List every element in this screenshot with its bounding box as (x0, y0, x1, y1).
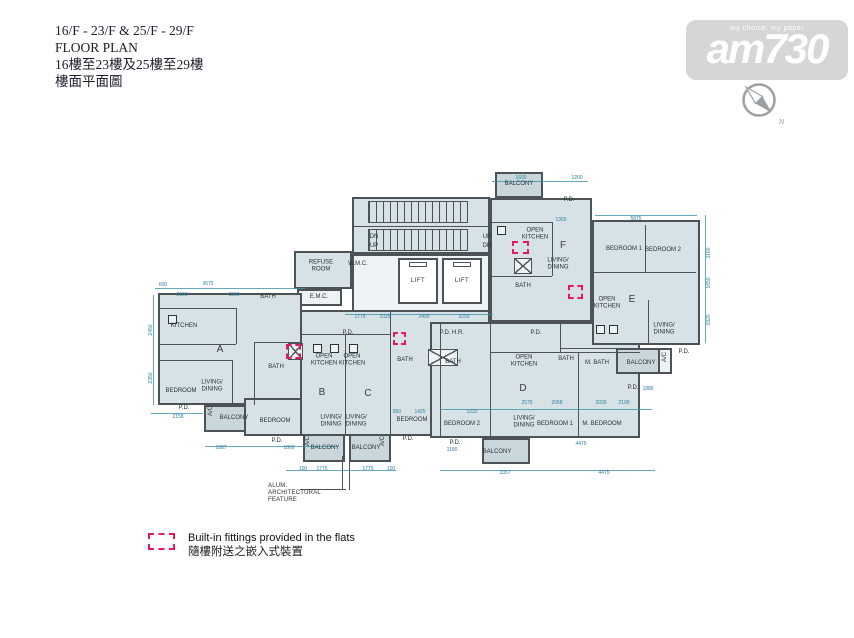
wall-segment (158, 308, 236, 309)
dimension-text: 1025 (379, 314, 390, 320)
built-in-fitting-box (568, 285, 583, 299)
dimension-text: 1775 (354, 314, 365, 320)
room-label: P.D. (450, 440, 461, 447)
room-label: LIVING/ DINING (653, 323, 674, 336)
room-label: LIVING/ DINING (513, 416, 534, 429)
room-label: UP (483, 234, 491, 241)
room-label: LIVING/ DINING (345, 415, 366, 428)
room-label: P.D. (440, 330, 451, 337)
dimension-text: 2030 (595, 400, 606, 406)
plan-block-stairs (368, 229, 468, 251)
legend-text: Built-in fittings provided in the flats … (188, 531, 355, 560)
unit-letter: D (519, 386, 526, 393)
room-label: REFUSE ROOM (309, 260, 333, 273)
room-label: P.D. (679, 349, 690, 356)
dimension-text: 2158 (172, 414, 183, 420)
plan-block-stairs (368, 201, 468, 223)
room-label: LIVING/ DINING (320, 415, 341, 428)
built-in-fitting-box (512, 241, 529, 254)
room-label: BEDROOM (259, 418, 290, 425)
dimension-text: 850 (393, 409, 401, 415)
dimension-text: 4475 (598, 470, 609, 476)
kitchen-fixture (349, 344, 358, 353)
wall-segment (560, 348, 640, 349)
wall-segment (490, 322, 491, 438)
dimension-text: 1100 (706, 248, 712, 259)
room-label: BATH (260, 294, 276, 301)
dimension-line (440, 470, 655, 471)
room-label: BALCONY (352, 445, 381, 452)
kitchen-fixture (596, 325, 605, 334)
wall-segment (236, 308, 237, 344)
wall-segment (440, 322, 441, 438)
room-label: BEDROOM (396, 417, 427, 424)
room-label: BEDROOM 2 (645, 247, 681, 254)
kitchen-fixture (609, 325, 618, 334)
dimension-text: 1200 (571, 175, 582, 181)
legend: Built-in fittings provided in the flats … (148, 531, 355, 560)
room-label: M. BATH (585, 360, 609, 367)
unit-letter: F (560, 243, 566, 250)
wall-segment (578, 352, 579, 438)
wall-segment (254, 342, 302, 343)
dimension-text: 2400 (418, 314, 429, 320)
kitchen-fixture (497, 226, 506, 235)
dimension-text: 3320 (706, 314, 712, 325)
wall-segment (352, 226, 490, 227)
legend-text-zh: 隨樓附送之嵌入式裝置 (188, 545, 355, 560)
room-label: P.D. (628, 385, 639, 392)
room-label: M. BEDROOM (582, 421, 621, 428)
unit-letter: A (217, 347, 224, 354)
plan-block-xbox (514, 258, 532, 274)
room-label: P.D. (403, 436, 414, 443)
dimension-text: 1775 (362, 466, 373, 472)
room-label: A/C (208, 406, 215, 416)
room-label: OPEN KITCHEN (511, 355, 537, 368)
room-label: BALCONY (483, 449, 512, 456)
built-in-fitting-box (286, 344, 301, 359)
room-label: P.D. (564, 197, 575, 204)
dimension-text: 2058 (551, 400, 562, 406)
wall-segment (158, 344, 236, 345)
room-label: P.D. (272, 438, 283, 445)
dimension-text: 1650 (706, 277, 712, 288)
room-label: LIVING/ DINING (547, 258, 568, 271)
room-label: E.M.C. (310, 294, 328, 301)
dimension-text: 100 (299, 466, 307, 472)
dimension-text: 1232 (466, 409, 477, 415)
room-label: BALCONY (220, 415, 249, 422)
built-in-fitting-box (393, 332, 406, 345)
room-label: OPEN KITCHEN (339, 354, 365, 367)
wall-segment (349, 456, 350, 490)
room-label: DN (483, 243, 492, 250)
room-label: OPEN KITCHEN (594, 297, 620, 310)
wall-segment (232, 360, 233, 405)
dimension-text: 2575 (521, 400, 532, 406)
wall-segment (490, 352, 640, 353)
room-label: BALCONY (505, 181, 534, 188)
room-label: BATH (515, 283, 531, 290)
room-label: BEDROOM (165, 388, 196, 395)
room-label: BATH (397, 357, 413, 364)
dimension-line (595, 215, 697, 216)
room-label: P.D. (179, 405, 190, 412)
dimension-text: 1886 (642, 386, 653, 392)
dimension-text: 1800 (283, 445, 294, 451)
dimension-text: 1300 (228, 292, 239, 298)
plan-block (490, 198, 592, 322)
unit-letter: C (364, 391, 371, 398)
room-label: BEDROOM 2 (444, 421, 480, 428)
kitchen-fixture (330, 344, 339, 353)
lift-shaft: LIFT (442, 258, 482, 304)
wall-segment (648, 300, 649, 345)
room-label: BALCONY (311, 445, 340, 452)
wall-segment (254, 342, 255, 405)
wall-segment (158, 360, 232, 361)
dimension-text: 1425 (414, 409, 425, 415)
built-in-fitting-swatch (148, 533, 175, 550)
dimension-text: 2450 (148, 324, 154, 335)
room-label: A/C (305, 436, 312, 446)
dimension-text: 1190 (447, 447, 458, 453)
room-label: KITCHEN (171, 323, 197, 330)
wall-segment (490, 276, 552, 277)
dimension-text: 100 (387, 466, 395, 472)
dimension-text: 1775 (316, 466, 327, 472)
dimension-text: 5875 (630, 216, 641, 222)
dimension-text: 4475 (575, 441, 586, 447)
room-label: DN (370, 234, 379, 241)
dimension-text: 3250 (458, 314, 469, 320)
dimension-text: 3357 (499, 470, 510, 476)
room-label: BEDROOM 1 (537, 421, 573, 428)
wall-segment (342, 456, 343, 490)
floor-plan-page: 16/F - 23/F & 25/F - 29/F FLOOR PLAN 16樓… (0, 0, 854, 638)
room-label: BALCONY (627, 360, 656, 367)
floor-plan: LIFTLIFTREFUSE ROOMW.M.C.E.M.C.DNUPUPDNK… (0, 0, 854, 638)
legend-text-en: Built-in fittings provided in the flats (188, 531, 355, 545)
room-label: UP (370, 243, 378, 250)
dimension-text: 1887 (215, 445, 226, 451)
lift-shaft: LIFT (398, 258, 438, 304)
dimension-text: 2350 (148, 372, 154, 383)
room-label: BATH (558, 356, 574, 363)
room-label: OPEN KITCHEN (522, 228, 548, 241)
room-label: BEDROOM 1 (606, 246, 642, 253)
wall-segment (592, 272, 696, 273)
dimension-line (153, 295, 154, 405)
unit-letter: B (319, 390, 326, 397)
room-label: BATH (268, 364, 284, 371)
wall-segment (490, 222, 552, 223)
room-label: OPEN KITCHEN (311, 354, 337, 367)
room-label: BATH (445, 359, 461, 366)
wall-segment (390, 310, 391, 436)
room-label: A/C (380, 436, 387, 446)
room-label: A/C (662, 352, 669, 362)
dimension-line (155, 288, 305, 289)
alum-feature-annotation: ALUM. ARCHITECTURAL FEATURE (268, 483, 321, 504)
room-label: P.D. (531, 330, 542, 337)
dimension-text: 3675 (202, 281, 213, 287)
room-label: LIVING/ DINING (201, 380, 222, 393)
room-label: H.R. (452, 330, 464, 337)
room-label: W.M.C. (348, 261, 368, 268)
dimension-text: 2150 (176, 292, 187, 298)
room-label: P.D. (343, 330, 354, 337)
kitchen-fixture (313, 344, 322, 353)
dimension-text: 1365 (555, 217, 566, 223)
dimension-text: 600 (159, 282, 167, 288)
dimension-text: 2100 (618, 400, 629, 406)
unit-letter: E (629, 297, 636, 304)
